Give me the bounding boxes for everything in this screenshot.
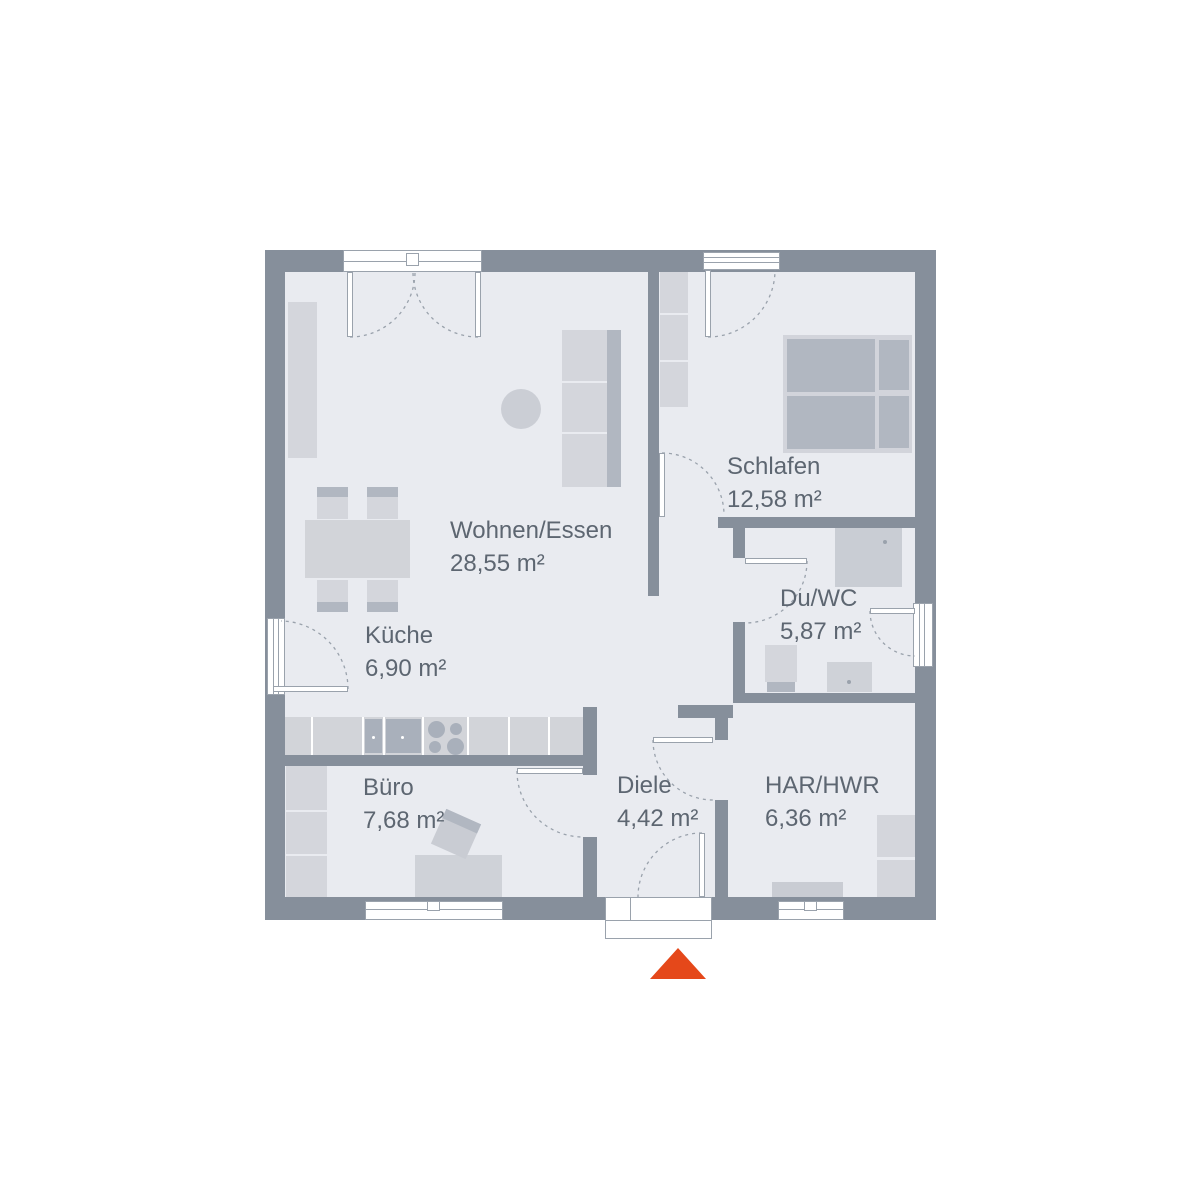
- dining-chair-back: [317, 487, 348, 497]
- bedroom-window-mullion: [704, 262, 779, 263]
- floor-plan-page: Wohnen/Essen 28,55 m² Schlafen 12,58 m² …: [0, 0, 1200, 1200]
- room-label-wohnen: Wohnen/Essen 28,55 m²: [450, 514, 612, 580]
- wall-har-left-lower: [715, 800, 728, 897]
- entrance-threshold: [606, 920, 711, 921]
- bedroom-window-mullion: [704, 257, 779, 258]
- bedroom-interior-door-leaf: [659, 453, 665, 517]
- room-name: Küche: [365, 619, 446, 652]
- kitchen-door-leaf: [273, 686, 348, 692]
- dining-chair-back: [367, 602, 398, 612]
- shelf-seam: [286, 854, 327, 856]
- room-area: 6,36 m²: [765, 802, 880, 835]
- bath-window-mullion: [919, 604, 920, 666]
- dining-chair-back: [367, 487, 398, 497]
- counter-seam: [508, 717, 510, 755]
- mattress: [787, 339, 875, 392]
- utility-door-leaf: [653, 737, 713, 743]
- toilet-tank: [765, 645, 797, 682]
- counter-seam: [422, 717, 424, 755]
- utility-counter: [772, 882, 843, 897]
- cooktop-burner: [428, 721, 445, 738]
- wall-buero-diele: [583, 837, 597, 897]
- mattress: [787, 396, 875, 449]
- sofa-seam: [562, 381, 607, 383]
- counter-seam: [467, 717, 469, 755]
- dryer: [877, 860, 915, 897]
- dining-table: [305, 520, 410, 578]
- wall-wohnen-schlafen: [648, 272, 659, 596]
- room-name: Wohnen/Essen: [450, 514, 612, 547]
- room-label-diele: Diele 4,42 m²: [617, 769, 698, 835]
- terrace-door-leaf-left: [347, 272, 353, 337]
- counter-seam: [362, 717, 364, 755]
- counter-seam: [548, 717, 550, 755]
- room-area: 5,87 m²: [780, 615, 861, 648]
- wall-duwc-har: [733, 693, 915, 703]
- kitchen-door-mullion: [278, 619, 279, 694]
- room-area: 4,42 m²: [617, 802, 698, 835]
- room-area: 7,68 m²: [363, 804, 444, 837]
- room-label-buero: Büro 7,68 m²: [363, 771, 444, 837]
- dishwasher-knob: [372, 736, 375, 739]
- dining-chair-back: [317, 602, 348, 612]
- bedroom-window-frame: [703, 252, 780, 270]
- wardrobe: [660, 272, 688, 407]
- entrance-door-leaf: [699, 833, 705, 897]
- kitchen-door-mullion: [273, 619, 274, 694]
- washer: [877, 815, 915, 857]
- utility-window-handle: [804, 901, 817, 911]
- bath-window-mullion: [924, 604, 925, 666]
- counter-seam: [383, 717, 385, 755]
- wardrobe-seam: [660, 360, 688, 362]
- washbasin: [827, 662, 872, 692]
- bath-window-frame: [913, 603, 933, 667]
- counter-seam: [311, 717, 313, 755]
- entrance-door-frame: [605, 897, 712, 939]
- triangle-up-icon: [650, 948, 706, 979]
- bath-door-leaf: [745, 558, 807, 564]
- sofa-backrest: [607, 330, 621, 487]
- bedroom-door-leaf: [705, 270, 711, 337]
- dining-chair: [317, 497, 348, 519]
- room-name: Diele: [617, 769, 698, 802]
- wall-har-left-upper: [715, 705, 728, 740]
- dining-chair: [367, 580, 398, 602]
- area-rug: [501, 389, 541, 429]
- washbasin-drain: [847, 680, 851, 684]
- dining-chair: [317, 580, 348, 602]
- sofa-seam: [562, 432, 607, 434]
- room-name: Schlafen: [727, 450, 822, 483]
- room-label-schlafen: Schlafen 12,58 m²: [727, 450, 822, 516]
- desk: [415, 855, 502, 897]
- room-area: 28,55 m²: [450, 547, 612, 580]
- shower-drain: [883, 540, 887, 544]
- entrance-sidelight-mullion: [630, 898, 631, 920]
- room-area: 12,58 m²: [727, 483, 822, 516]
- cooktop-burner: [450, 723, 462, 735]
- bath-window-leaf: [870, 608, 915, 614]
- terrace-door-leaf-right: [475, 272, 481, 337]
- office-window-handle: [427, 901, 440, 911]
- room-label-har: HAR/HWR 6,36 m²: [765, 769, 880, 835]
- wall-schlafen-duwc: [718, 517, 915, 528]
- room-name: Büro: [363, 771, 444, 804]
- wall-duwc-left-lower: [733, 622, 745, 703]
- sofa-seats: [562, 330, 607, 487]
- room-area: 6,90 m²: [365, 652, 446, 685]
- cooktop-burner: [429, 741, 441, 753]
- shelf-seam: [286, 810, 327, 812]
- sideboard: [288, 302, 317, 458]
- office-shelf: [286, 766, 327, 897]
- toilet-bowl: [767, 682, 795, 692]
- cooktop-burner: [447, 738, 464, 755]
- pillow: [879, 340, 909, 390]
- wardrobe-seam: [660, 313, 688, 315]
- terrace-door-handle: [406, 253, 419, 266]
- wall-kueche-buero: [285, 755, 597, 766]
- oven-knob: [401, 736, 404, 739]
- dining-chair: [367, 497, 398, 519]
- wall-duwc-left-upper: [733, 528, 745, 558]
- shower: [835, 528, 902, 587]
- room-name: Du/WC: [780, 582, 861, 615]
- office-door-leaf: [517, 768, 583, 774]
- room-label-duwc: Du/WC 5,87 m²: [780, 582, 861, 648]
- floor-plan: Wohnen/Essen 28,55 m² Schlafen 12,58 m² …: [265, 250, 936, 920]
- pillow: [879, 396, 909, 448]
- kitchen-door-frame: [267, 618, 285, 695]
- room-name: HAR/HWR: [765, 769, 880, 802]
- room-label-kueche: Küche 6,90 m²: [365, 619, 446, 685]
